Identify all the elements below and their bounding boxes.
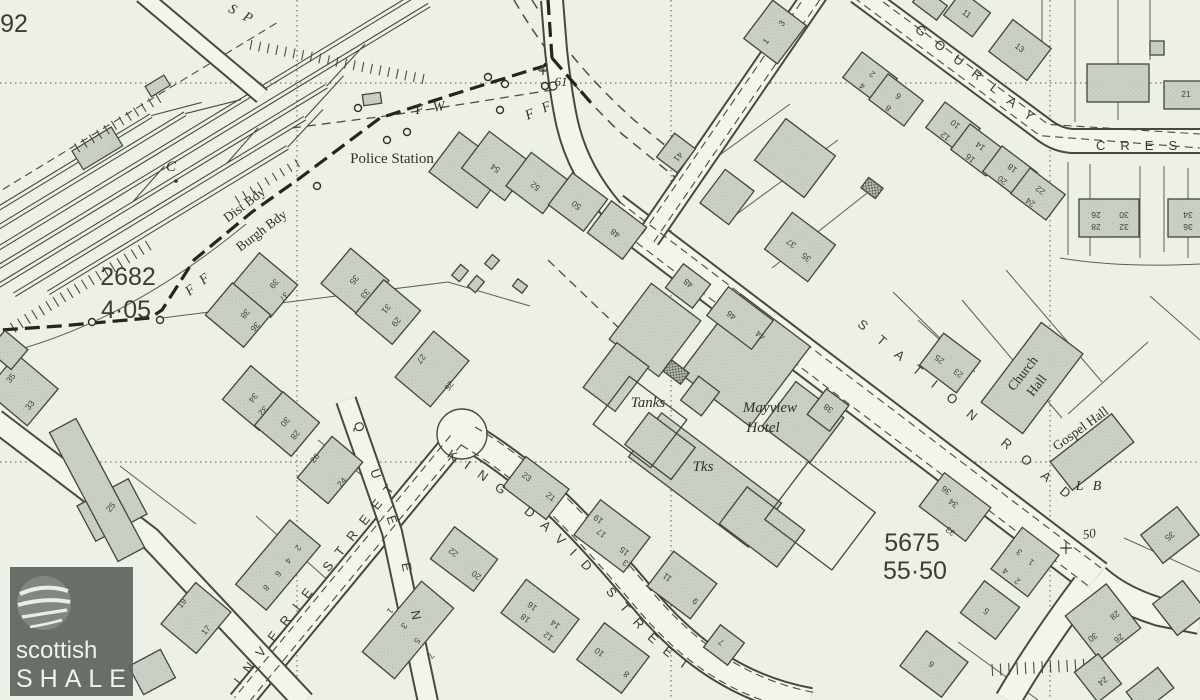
boundary-post bbox=[314, 183, 321, 190]
place-label: + bbox=[1062, 541, 1070, 557]
boundary-post bbox=[89, 319, 96, 326]
boundary-post bbox=[485, 74, 492, 81]
place-label: + bbox=[539, 64, 547, 80]
boundary-post bbox=[157, 317, 164, 324]
house-number: 21 bbox=[1181, 89, 1191, 99]
road-junction-bulb bbox=[437, 409, 487, 459]
place-label: C bbox=[166, 159, 177, 175]
os-map-canvas: 5452504837352523246810121416182022241113… bbox=[0, 0, 1200, 700]
watermark-line1: scottish bbox=[16, 637, 97, 664]
map-page: 5452504837352523246810121416182022241113… bbox=[0, 0, 1200, 700]
place-label: Tks bbox=[693, 459, 714, 475]
boundary-post bbox=[542, 83, 549, 90]
boundary-post bbox=[497, 107, 504, 114]
boundary-post bbox=[384, 137, 391, 144]
street-name-label: CRES bbox=[1096, 138, 1192, 153]
place-label: 61 bbox=[555, 74, 568, 89]
place-label: L B bbox=[1075, 479, 1105, 494]
watermark-line2: SHALE bbox=[16, 665, 133, 693]
boundary-post bbox=[355, 105, 362, 112]
place-label: 5675 bbox=[884, 529, 940, 557]
place-label: 92 bbox=[0, 10, 28, 38]
building bbox=[1087, 64, 1149, 102]
place-label: 2682 bbox=[100, 263, 156, 291]
globe-icon bbox=[17, 576, 71, 630]
boundary-post bbox=[502, 81, 509, 88]
house-number: 34 bbox=[1183, 210, 1193, 220]
place-label: Police Station bbox=[350, 151, 434, 167]
scottish-shale-watermark: scottish SHALE bbox=[10, 567, 133, 696]
place-label: Tanks bbox=[631, 395, 666, 411]
building bbox=[1079, 199, 1139, 237]
place-label: 4·05 bbox=[101, 296, 151, 324]
place-label: Hotel bbox=[745, 420, 779, 436]
house-number: 30 bbox=[1119, 210, 1129, 220]
house-number: 26 bbox=[1091, 210, 1101, 220]
building bbox=[362, 92, 381, 105]
c-point-dot bbox=[174, 179, 178, 183]
house-number: 36 bbox=[1183, 222, 1193, 232]
building bbox=[1150, 41, 1164, 55]
house-number: 32 bbox=[1119, 222, 1129, 232]
house-number: 28 bbox=[1091, 222, 1101, 232]
place-label: Mayview bbox=[742, 400, 797, 416]
place-label: 55·50 bbox=[883, 557, 947, 585]
boundary-post bbox=[404, 129, 411, 136]
